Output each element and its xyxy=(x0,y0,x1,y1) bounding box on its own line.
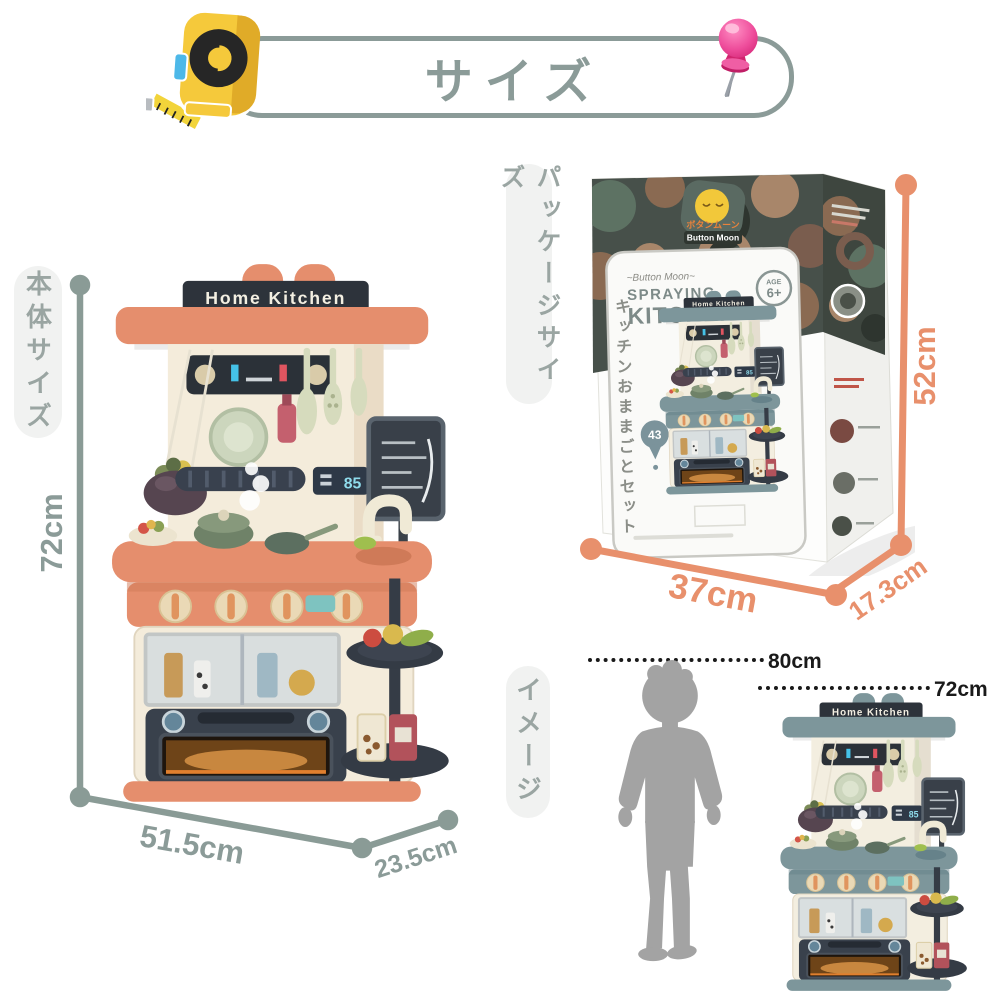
push-pin-icon xyxy=(700,14,770,109)
child-silhouette xyxy=(592,660,742,978)
tape-measure-icon xyxy=(146,6,286,146)
product-height-dotted-line xyxy=(758,686,930,690)
package-height-label: 52cm xyxy=(907,326,943,405)
child-height-label: 80cm xyxy=(768,650,822,674)
image-label: イメージ xyxy=(510,676,547,808)
product-size-infographic: Home Kitchen xyxy=(0,0,1000,1000)
package-size-label-pill: パッケージサイズ xyxy=(506,164,552,404)
kitchen-product-image xyxy=(86,262,458,802)
package-size-label: パッケージサイズ xyxy=(493,164,565,404)
kitchen-scale-image xyxy=(766,692,972,991)
body-size-label: 本体サイズ xyxy=(20,270,57,435)
page-title: サイズ xyxy=(413,42,604,112)
image-label-pill: イメージ xyxy=(506,666,550,818)
body-size-label-pill: 本体サイズ xyxy=(14,266,62,438)
body-height-label: 72cm xyxy=(34,493,70,572)
